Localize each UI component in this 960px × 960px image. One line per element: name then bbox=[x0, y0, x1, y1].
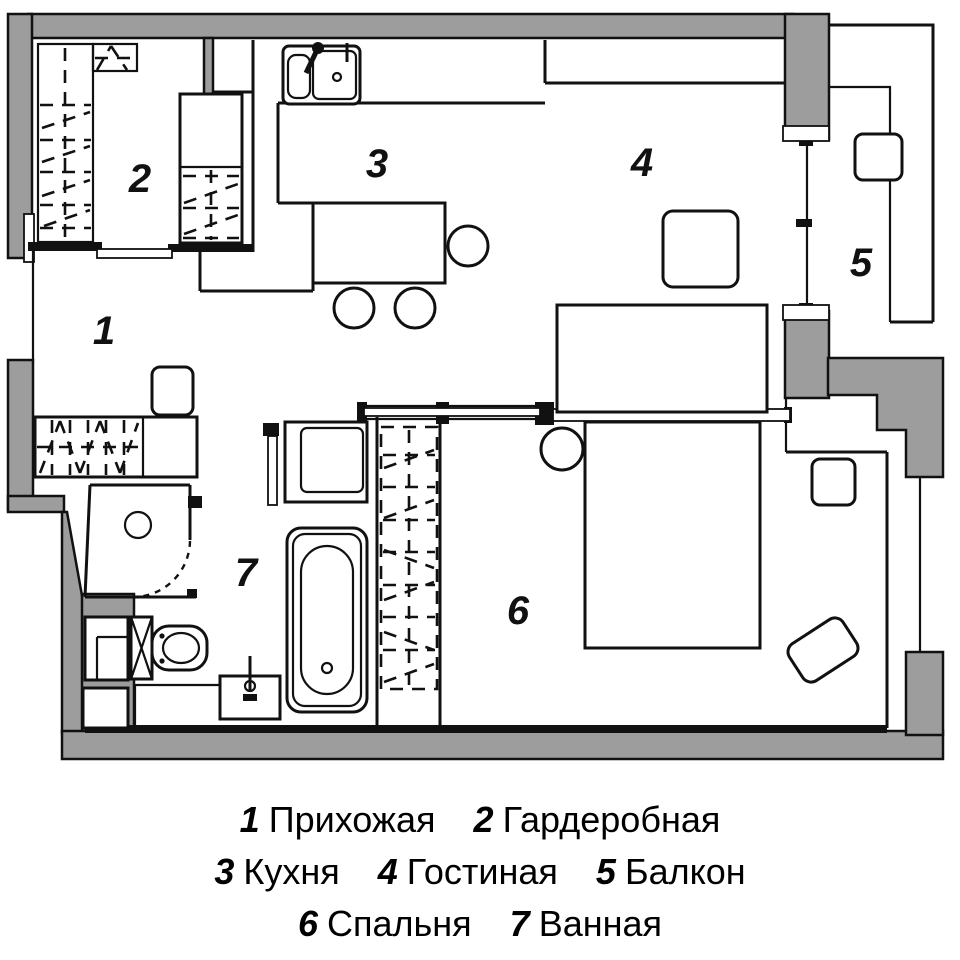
utility-shaft bbox=[85, 617, 128, 680]
legend-row: 6Спальня 7Ванная bbox=[0, 898, 960, 950]
window-frame-bottom bbox=[783, 305, 829, 320]
bath-door-jamb bbox=[263, 423, 279, 436]
legend-number: 1 bbox=[240, 799, 260, 840]
washing-machine bbox=[285, 422, 367, 502]
sliding-door-panel bbox=[364, 408, 540, 416]
room-label-1: 1 bbox=[93, 309, 115, 353]
armchair bbox=[541, 428, 583, 470]
legend-label: Прихожая bbox=[269, 799, 436, 840]
wardrobe-door-threshold bbox=[97, 249, 172, 258]
wall-stub bbox=[204, 38, 213, 94]
bathroom-door bbox=[268, 436, 277, 505]
room-label-4: 4 bbox=[630, 141, 653, 185]
utility-shafts bbox=[83, 617, 128, 728]
wall-left-step bbox=[8, 496, 64, 512]
legend-number: 6 bbox=[298, 903, 318, 944]
floor-plan: 1 2 3 4 5 6 7 bbox=[0, 0, 960, 770]
legend-row: 1Прихожая 2Гардеробная bbox=[0, 794, 960, 846]
room-label-6: 6 bbox=[507, 589, 530, 633]
legend: 1Прихожая 2Гардеробная 3Кухня 4Гостиная … bbox=[0, 770, 960, 950]
legend-label: Гостиная bbox=[407, 851, 558, 892]
sofa bbox=[557, 305, 767, 412]
wardrobe-column bbox=[381, 427, 437, 689]
legend-item-5: 5Балкон bbox=[596, 851, 746, 892]
legend-row: 3Кухня 4Гостиная 5Балкон bbox=[0, 846, 960, 898]
legend-label: Гардеробная bbox=[503, 799, 721, 840]
kitchen-island bbox=[313, 203, 445, 283]
legend-label: Кухня bbox=[243, 851, 339, 892]
wall-right-pier-low bbox=[906, 652, 943, 735]
legend-label: Спальня bbox=[327, 903, 472, 944]
legend-item-7: 7Ванная bbox=[510, 903, 662, 944]
bathtub bbox=[287, 528, 367, 712]
wall-bottom bbox=[62, 731, 943, 759]
legend-number: 3 bbox=[214, 851, 234, 892]
pouf bbox=[784, 614, 862, 686]
wall-bottom-edge bbox=[85, 725, 887, 733]
bedroom-furniture bbox=[541, 422, 862, 686]
wardrobe-wall-right bbox=[168, 244, 254, 252]
window-tick-mid bbox=[796, 219, 812, 227]
shoe-cabinet bbox=[152, 367, 193, 415]
legend-item-2: 2Гардеробная bbox=[474, 799, 721, 840]
wardrobe-wall-left bbox=[28, 242, 102, 251]
bar-stool bbox=[448, 226, 488, 266]
legend-label: Балкон bbox=[625, 851, 746, 892]
nightstand bbox=[812, 459, 855, 505]
legend-item-6: 6Спальня bbox=[298, 903, 472, 944]
room-label-5: 5 bbox=[850, 241, 873, 285]
shower-drain-icon bbox=[125, 512, 151, 538]
bar-stool bbox=[395, 288, 435, 328]
toilet bbox=[131, 617, 207, 679]
room-label-2: 2 bbox=[128, 157, 151, 201]
bed bbox=[585, 422, 760, 648]
shower-door-swing bbox=[133, 541, 190, 597]
kitchen-sink bbox=[283, 42, 360, 104]
hall-closet bbox=[35, 417, 197, 477]
shower-cabin bbox=[85, 485, 196, 597]
balcony-glazing bbox=[828, 87, 890, 322]
wall-left-mid bbox=[8, 360, 33, 510]
legend-item-4: 4Гостиная bbox=[378, 851, 558, 892]
legend-label: Ванная bbox=[539, 903, 662, 944]
legend-number: 7 bbox=[510, 903, 530, 944]
balcony-stool bbox=[855, 134, 902, 180]
wall-top bbox=[28, 14, 793, 38]
coffee-table bbox=[663, 211, 738, 287]
legend-number: 4 bbox=[378, 851, 398, 892]
legend-item-3: 3Кухня bbox=[214, 851, 339, 892]
utility-shaft bbox=[83, 688, 128, 728]
legend-item-1: 1Прихожая bbox=[240, 799, 436, 840]
window-frame-top bbox=[783, 126, 829, 141]
wall-pier-balcony bbox=[785, 311, 829, 398]
legend-number: 5 bbox=[596, 851, 616, 892]
legend-number: 2 bbox=[474, 799, 494, 840]
bar-stools bbox=[334, 226, 488, 328]
room-label-7: 7 bbox=[235, 551, 259, 595]
bar-stool bbox=[334, 288, 374, 328]
room-label-3: 3 bbox=[366, 142, 388, 186]
wall-pier-top-right bbox=[785, 14, 829, 140]
